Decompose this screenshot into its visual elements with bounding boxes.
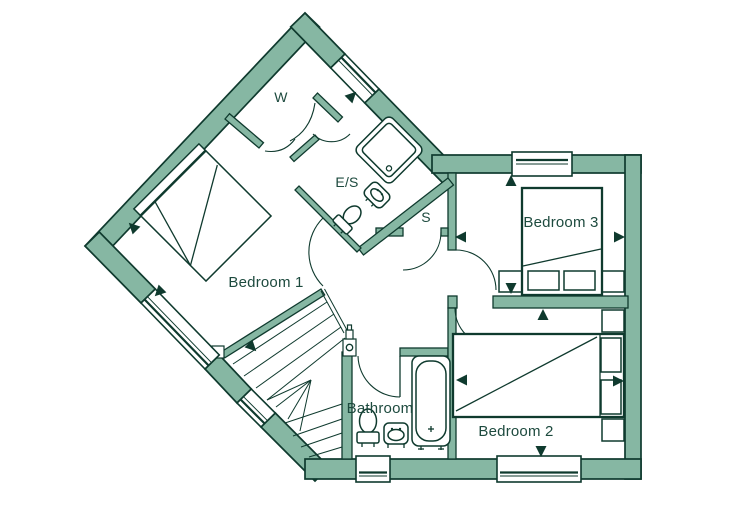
wardrobe-wall-left [225, 114, 264, 148]
bed-bedroom1 [134, 144, 271, 281]
bathroom-label: Bathroom [347, 400, 414, 417]
nightstand [602, 271, 624, 292]
bed-bedroom3 [499, 188, 624, 295]
store-label: S [421, 209, 431, 225]
bathtub [412, 356, 450, 450]
door-swing-bathroom [358, 356, 400, 397]
dimension-arrow [614, 232, 625, 243]
divider-wall-jamb [448, 296, 457, 308]
stairwell-wall [221, 289, 325, 358]
nightstand [602, 419, 624, 441]
ensuite-label: E/S [335, 174, 358, 190]
bed-bedroom2 [453, 310, 624, 441]
pillow [564, 271, 595, 290]
door-swing-bedroom1 [309, 218, 323, 286]
wardrobe-label: W [274, 89, 288, 105]
ensuite-basin [360, 180, 392, 212]
door-swing-wardrobe-right [290, 103, 315, 141]
window-bathroom [356, 456, 390, 482]
pillow [528, 271, 559, 290]
bedroom2-label: Bedroom 2 [478, 423, 553, 440]
floor-plan-canvas: Bedroom 1 Bedroom 3 Bedroom 2 Bathroom E… [0, 0, 747, 523]
door-swing-store [403, 232, 441, 270]
stair-handrail [321, 291, 344, 333]
pillow [601, 338, 621, 372]
bedroom1-label: Bedroom 1 [228, 274, 303, 291]
basin [384, 423, 408, 448]
floor-plan: Bedroom 1 Bedroom 3 Bedroom 2 Bathroom E… [0, 0, 747, 523]
door-swing-bedroom3 [456, 250, 496, 290]
wardrobe-wall-right [313, 93, 343, 122]
window-bedroom2 [497, 456, 581, 482]
nightstand [602, 310, 624, 332]
pillow [601, 380, 621, 414]
window-bedroom3 [512, 152, 572, 176]
newel-post [343, 325, 356, 356]
store-wall-right [441, 228, 448, 236]
window-bedroom1-large [141, 289, 219, 369]
wall-right [625, 155, 641, 479]
wall-lower-left-1 [85, 232, 155, 303]
dimension-arrow [538, 309, 549, 320]
bathroom-top-wall [400, 348, 448, 356]
divider-wall-bed2-bed3 [493, 296, 628, 308]
bedroom3-label: Bedroom 3 [523, 214, 598, 231]
